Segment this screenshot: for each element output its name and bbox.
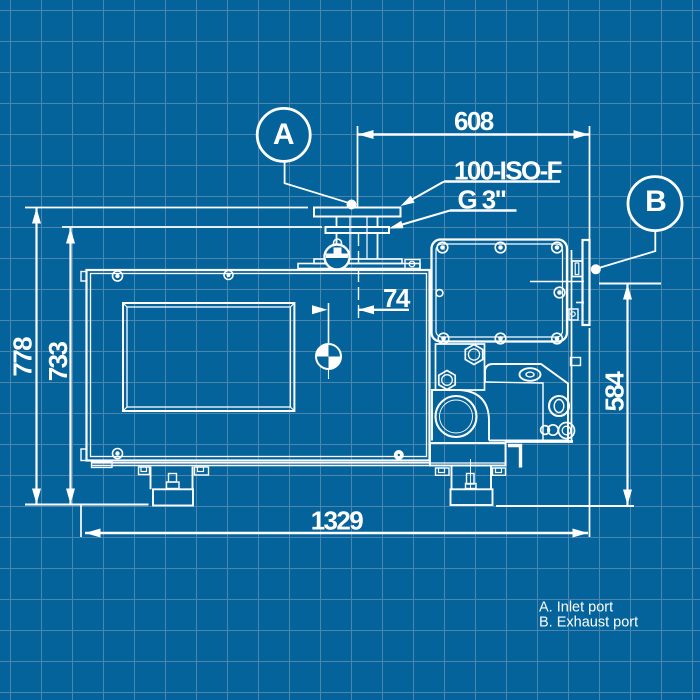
svg-text:778: 778	[7, 337, 37, 377]
svg-text:A. Inlet port: A. Inlet port	[539, 600, 613, 616]
svg-text:1329: 1329	[311, 506, 364, 536]
svg-text:G 3": G 3"	[458, 185, 506, 215]
svg-text:100-ISO-F: 100-ISO-F	[454, 156, 562, 186]
svg-text:A: A	[273, 118, 295, 151]
svg-text:733: 733	[43, 341, 73, 381]
svg-text:B: B	[645, 185, 667, 218]
svg-text:74: 74	[383, 283, 411, 313]
svg-text:608: 608	[454, 106, 494, 136]
svg-text:B. Exhaust port: B. Exhaust port	[539, 615, 638, 631]
svg-text:584: 584	[600, 371, 630, 412]
